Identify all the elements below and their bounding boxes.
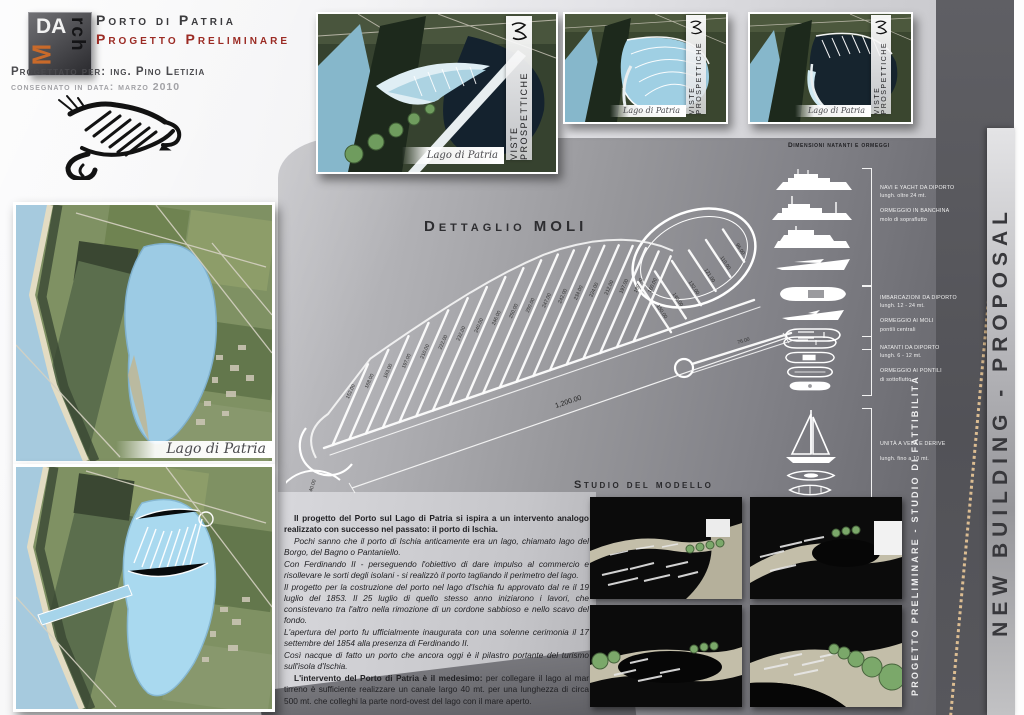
motor-yacht-icon <box>770 196 854 222</box>
narrative-paragraph: Il progetto per la costruzione del porto… <box>284 582 589 626</box>
dinghy-top-icon <box>788 484 832 496</box>
boat-group-sail: UNITÀ A VELA E DERIVE lungh. fino a 10 m… <box>756 408 970 506</box>
view-caption: Lago di Patria <box>795 105 871 117</box>
group-bracket <box>862 336 872 396</box>
narrative-text: Il progetto del Porto sul Lago di Patria… <box>284 513 589 708</box>
narrative-paragraph: Con Ferdinando II - perseguendo l'obiett… <box>284 559 589 581</box>
viste-strip-label: VISTE PROSPETTICHE <box>874 42 888 114</box>
banner-text: NEW BUILDING - PROPOSAL <box>989 206 1013 637</box>
page-title: Porto di Patria <box>96 12 236 28</box>
satellite-photo-project-image <box>16 467 272 709</box>
satellite-photo-lake-image <box>16 205 272 461</box>
perspective-view-1: VISTE PROSPETTICHE Lago di Patria <box>316 12 558 174</box>
view-caption: Lago di Patria <box>402 147 504 164</box>
moli-drawing: 1,200.00 40.00 76.00 152.00168.00183.001… <box>286 196 806 506</box>
kayak-top-icon <box>786 470 836 481</box>
right-margin <box>1014 0 1024 715</box>
perspective-view-3: VISTE PROSPETTICHE Lago di Patria <box>748 12 913 124</box>
logo-rch-text: rch <box>66 17 88 53</box>
small-boat-top-icon <box>784 351 836 364</box>
speedboat-side-icon <box>780 306 846 322</box>
logo-m-text: M <box>26 44 57 66</box>
scorpion-sketch <box>52 92 207 180</box>
narrative-paragraph: Così nacque di fatto un porto che ancora… <box>284 650 589 672</box>
photo-caption: Lago di Patria <box>116 441 272 458</box>
svg-text:76.00: 76.00 <box>737 336 751 345</box>
sport-yacht-icon <box>774 254 852 272</box>
sketch-icon <box>509 19 529 45</box>
page-subtitle: Progetto Preliminare <box>96 31 290 47</box>
client-line: Progettato per: ing. Pino Letizia <box>11 66 205 78</box>
boat-group-label: IMBARCAZIONI DA DIPORTO lungh. 12 - 24 m… <box>880 294 957 334</box>
perspective-view-2: VISTE PROSPETTICHE Lago di Patria <box>563 12 728 124</box>
viste-strip-label: VISTE PROSPETTICHE <box>509 49 529 160</box>
viste-strip-3: VISTE PROSPETTICHE <box>871 15 891 114</box>
sketch-icon <box>873 18 889 38</box>
boat-group-label: NAVI E YACHT DA DIPORTO lungh. oltre 24 … <box>880 184 954 224</box>
model-study-heading: Studio del modello <box>574 479 713 491</box>
narrative-paragraph: L'apertura del porto fu ufficialmente in… <box>284 627 589 649</box>
sailboat-icon <box>782 408 840 466</box>
narrative-paragraph: Il progetto del Porto sul Lago di Patria… <box>284 513 589 535</box>
presentation-board: DA M rch Porto di Patria Progetto Prelim… <box>0 0 1024 715</box>
boat-group-large: NAVI E YACHT DA DIPORTO lungh. oltre 24 … <box>756 168 970 294</box>
rail-subtitle: PROGETTO PRELIMINARE - STUDIO DI FATTIBI… <box>910 368 926 703</box>
logo-da-text: DA <box>36 15 66 39</box>
group-bracket <box>862 408 872 500</box>
expedition-yacht-icon <box>772 226 852 250</box>
svg-text:40.00: 40.00 <box>308 479 318 493</box>
model-render-1 <box>590 497 742 599</box>
cruise-yacht-icon <box>774 168 854 192</box>
satellite-photo-project <box>13 464 275 712</box>
boat-group-small: NATANTI DA DIPORTO lungh. 6 - 12 mt. ORM… <box>756 336 970 402</box>
small-boat-top-icon <box>782 336 838 349</box>
group-bracket <box>862 168 872 286</box>
narrative-paragraph: L'intervento del Porto di Patria è il me… <box>284 673 589 706</box>
model-render-2 <box>750 497 902 599</box>
viste-strip-1: VISTE PROSPETTICHE <box>506 16 532 160</box>
viste-strip-label: VISTE PROSPETTICHE <box>689 42 703 114</box>
svg-text:1,200.00: 1,200.00 <box>554 395 582 410</box>
model-render-3 <box>590 605 742 707</box>
narrative-paragraph: Pochi sanno che il porto di Ischia antic… <box>284 536 589 558</box>
satellite-photo-lake: Lago di Patria <box>13 202 275 464</box>
viste-strip-2: VISTE PROSPETTICHE <box>686 15 706 114</box>
small-boat-top-icon <box>788 380 832 392</box>
model-render-4 <box>750 605 902 707</box>
sketch-icon <box>688 18 704 38</box>
boats-heading: Dimensioni natanti e ormeggi <box>788 142 938 149</box>
view-caption: Lago di Patria <box>610 105 686 117</box>
small-boat-top-icon <box>786 366 834 378</box>
banner-strip: NEW BUILDING - PROPOSAL <box>987 128 1015 715</box>
motorboat-top-icon <box>778 286 848 302</box>
narrative-lead: L'intervento del Porto di Patria è il me… <box>294 673 482 683</box>
